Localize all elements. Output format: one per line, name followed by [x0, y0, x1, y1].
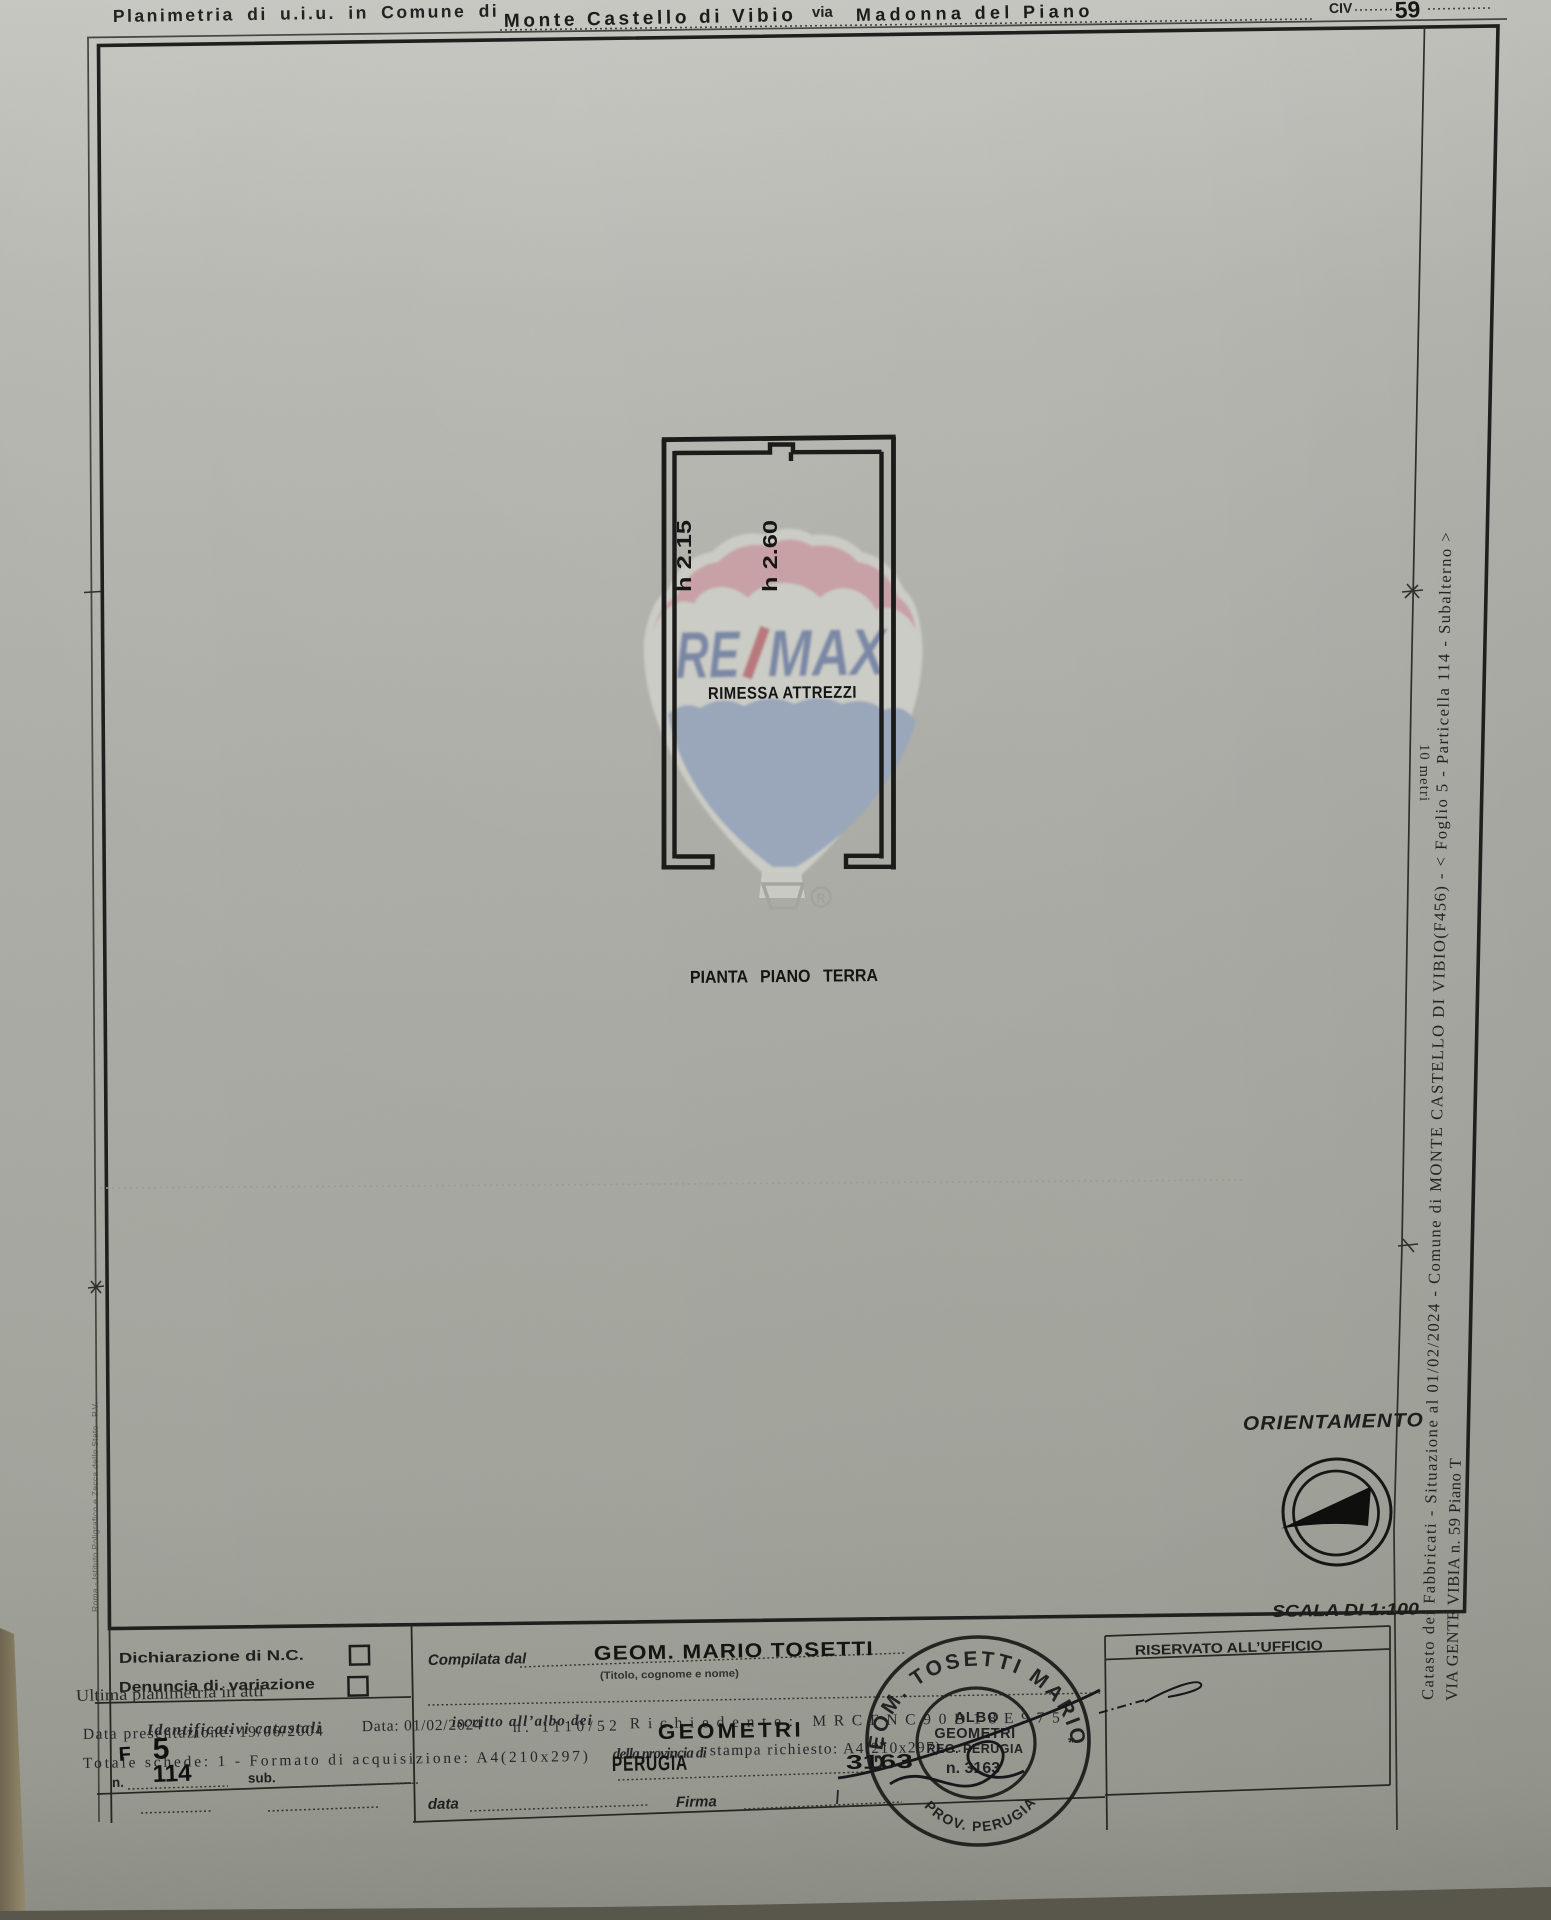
svg-text:MAX: MAX	[767, 614, 889, 690]
svg-text:PERUGIA: PERUGIA	[612, 1752, 688, 1776]
svg-text:Roma - Istituto Poligrafico e: Roma - Istituto Poligrafico e Zecca dell…	[90, 1402, 100, 1612]
svg-text:114: 114	[152, 1760, 192, 1788]
svg-text:data: data	[428, 1795, 459, 1813]
svg-text:PIANTA PIANO TERRA: PIANTA PIANO TERRA	[690, 965, 879, 987]
svg-text:Compilata dal: Compilata dal	[428, 1650, 527, 1669]
svg-text:Dichiarazione di N.C.: Dichiarazione di N.C.	[119, 1648, 304, 1667]
svg-text:GEOMETRI: GEOMETRI	[658, 1718, 804, 1744]
svg-text:R: R	[816, 892, 825, 906]
svg-text:n.: n.	[112, 1775, 124, 1790]
svg-text:ALBO: ALBO	[954, 1710, 999, 1726]
svg-text:ORIENTAMENTO: ORIENTAMENTO	[1243, 1409, 1424, 1435]
svg-text:(Titolo, cognome e nome): (Titolo, cognome e nome)	[600, 1668, 739, 1682]
svg-text:n. 1110/52: n. 1110/52	[513, 1718, 617, 1736]
svg-text:RE: RE	[675, 617, 742, 692]
svg-text:10 metri: 10 metri	[1416, 744, 1432, 801]
svg-text:VIA GENTE VIBIA n. 59 Piano T: VIA GENTE VIBIA n. 59 Piano T	[1442, 1458, 1465, 1701]
svg-text:CIV: CIV	[1329, 0, 1353, 16]
svg-text:Firma: Firma	[676, 1793, 717, 1811]
svg-text:*: *	[1068, 1733, 1075, 1752]
svg-text:h 2.15: h 2.15	[674, 520, 696, 592]
svg-text:h 2.60: h 2.60	[760, 520, 782, 592]
svg-text:RIMESSA ATTREZZI: RIMESSA ATTREZZI	[708, 683, 857, 703]
svg-text:F: F	[118, 1743, 131, 1766]
svg-text:*: *	[880, 1737, 887, 1756]
svg-text:SCALA DI 1:100: SCALA DI 1:100	[1272, 1599, 1420, 1621]
svg-text:sub.: sub.	[248, 1770, 276, 1785]
svg-text:Identificativi catastali: Identificativi catastali	[146, 1720, 322, 1739]
svg-text:via: via	[812, 4, 834, 21]
